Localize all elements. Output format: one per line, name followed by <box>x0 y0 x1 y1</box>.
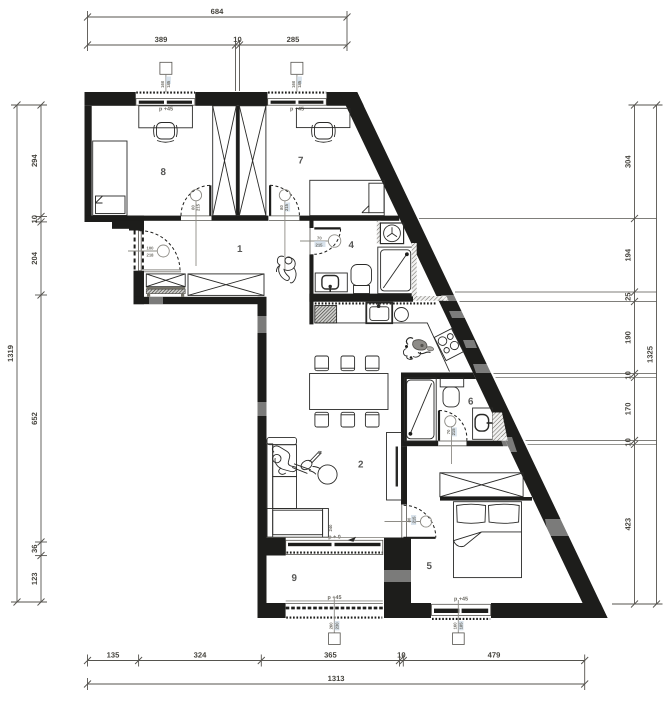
svg-text:365: 365 <box>324 651 337 660</box>
svg-text:100: 100 <box>147 246 155 251</box>
svg-text:7: 7 <box>298 156 304 167</box>
svg-text:479: 479 <box>488 651 501 660</box>
svg-text:294: 294 <box>30 154 39 167</box>
svg-text:160: 160 <box>160 80 165 88</box>
svg-text:1: 1 <box>237 244 243 255</box>
svg-text:215: 215 <box>195 203 200 211</box>
svg-text:70: 70 <box>317 236 322 241</box>
svg-text:304: 304 <box>624 155 633 168</box>
svg-text:p +45: p +45 <box>159 106 173 112</box>
svg-text:215: 215 <box>451 428 456 436</box>
svg-text:185: 185 <box>297 80 302 88</box>
svg-text:160: 160 <box>291 80 296 88</box>
svg-text:215: 215 <box>411 516 416 524</box>
svg-text:10: 10 <box>30 215 39 223</box>
svg-text:185: 185 <box>166 80 171 88</box>
svg-text:25: 25 <box>624 292 633 301</box>
svg-text:5: 5 <box>427 561 433 572</box>
svg-text:423: 423 <box>624 518 633 531</box>
svg-text:p +45: p +45 <box>454 597 468 603</box>
svg-text:36: 36 <box>30 545 39 553</box>
svg-text:1319: 1319 <box>6 345 15 362</box>
svg-text:215: 215 <box>316 243 324 248</box>
svg-text:324: 324 <box>194 651 207 660</box>
svg-text:4: 4 <box>349 240 355 251</box>
svg-text:204: 204 <box>30 251 39 264</box>
svg-text:240: 240 <box>328 524 333 532</box>
svg-text:10: 10 <box>233 35 241 44</box>
svg-text:10: 10 <box>624 371 633 379</box>
svg-text:10: 10 <box>397 651 405 660</box>
svg-text:10: 10 <box>624 438 633 446</box>
svg-text:185: 185 <box>458 622 463 630</box>
svg-text:194: 194 <box>624 248 633 261</box>
svg-text:1325: 1325 <box>646 345 655 363</box>
svg-text:6: 6 <box>468 397 474 408</box>
svg-text:260: 260 <box>328 622 333 630</box>
svg-text:p +45: p +45 <box>290 106 304 112</box>
svg-text:160: 160 <box>452 622 457 630</box>
svg-text:123: 123 <box>30 572 39 585</box>
svg-text:190: 190 <box>624 331 633 344</box>
svg-text:170: 170 <box>624 403 633 416</box>
svg-text:1313: 1313 <box>328 674 345 683</box>
svg-text:8: 8 <box>161 167 167 178</box>
svg-text:652: 652 <box>30 412 39 425</box>
svg-text:135: 135 <box>107 651 120 660</box>
svg-text:684: 684 <box>211 7 224 16</box>
svg-text:218: 218 <box>147 253 155 258</box>
svg-text:9: 9 <box>292 573 298 584</box>
svg-text:215: 215 <box>284 203 289 211</box>
svg-text:285: 285 <box>287 35 300 44</box>
svg-text:2: 2 <box>358 460 364 471</box>
svg-text:230: 230 <box>334 622 339 630</box>
svg-text:389: 389 <box>155 35 168 44</box>
